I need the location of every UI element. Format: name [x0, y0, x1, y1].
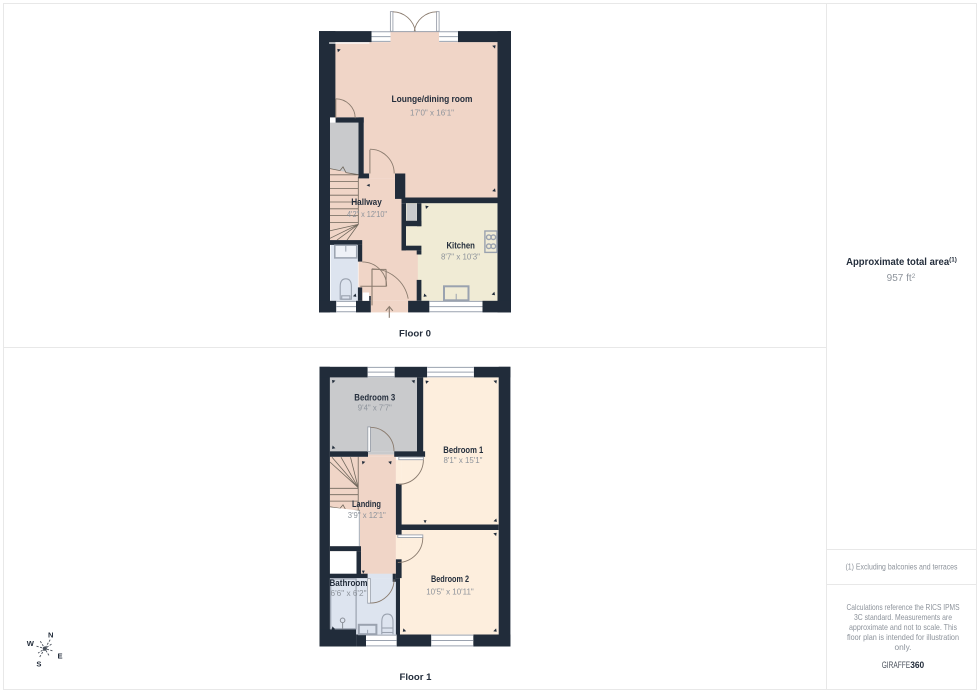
svg-text:8'1" x 15'1": 8'1" x 15'1": [444, 456, 483, 465]
svg-text:6'6" x 6'2": 6'6" x 6'2": [331, 589, 367, 598]
svg-text:3C standard. Measurements are: 3C standard. Measurements are: [854, 613, 952, 622]
svg-text:N: N: [48, 631, 53, 640]
svg-text:Calculations reference the RIC: Calculations reference the RICS IPMS: [847, 603, 960, 612]
svg-text:Floor 1: Floor 1: [400, 672, 433, 683]
svg-text:Hallway: Hallway: [351, 197, 382, 207]
svg-text:GIRAFFE360: GIRAFFE360: [882, 660, 925, 670]
svg-text:S: S: [36, 659, 41, 668]
svg-text:4'2" x 12'10": 4'2" x 12'10": [347, 210, 387, 219]
svg-text:Bathroom: Bathroom: [330, 578, 368, 588]
svg-text:3'9" x 12'1": 3'9" x 12'1": [348, 511, 386, 520]
svg-text:floor plan is intended for ill: floor plan is intended for illustration: [847, 633, 959, 642]
svg-text:only.: only.: [895, 643, 912, 652]
svg-text:9'4" x 7'7": 9'4" x 7'7": [358, 403, 392, 412]
svg-text:Bedroom 1: Bedroom 1: [443, 445, 483, 455]
svg-text:Bedroom 2: Bedroom 2: [431, 574, 469, 584]
svg-text:Landing: Landing: [352, 499, 381, 509]
svg-text:8'7" x 10'3": 8'7" x 10'3": [441, 253, 480, 262]
svg-text:957 ft2: 957 ft2: [887, 273, 916, 284]
svg-text:10'5" x 10'11": 10'5" x 10'11": [426, 587, 474, 596]
svg-text:Bedroom 3: Bedroom 3: [354, 393, 395, 403]
svg-text:W: W: [27, 639, 35, 648]
svg-text:approximate and not to scale.: approximate and not to scale. This: [849, 623, 957, 632]
svg-text:Approximate total area(1): Approximate total area(1): [846, 257, 957, 269]
svg-text:17'0" x 16'1": 17'0" x 16'1": [410, 109, 454, 118]
svg-text:Kitchen: Kitchen: [446, 240, 475, 250]
svg-text:Floor 0: Floor 0: [399, 329, 431, 340]
svg-text:E: E: [57, 651, 62, 660]
svg-text:(1) Excluding balconies and te: (1) Excluding balconies and terraces: [846, 562, 958, 571]
svg-text:Lounge/dining room: Lounge/dining room: [392, 94, 473, 104]
